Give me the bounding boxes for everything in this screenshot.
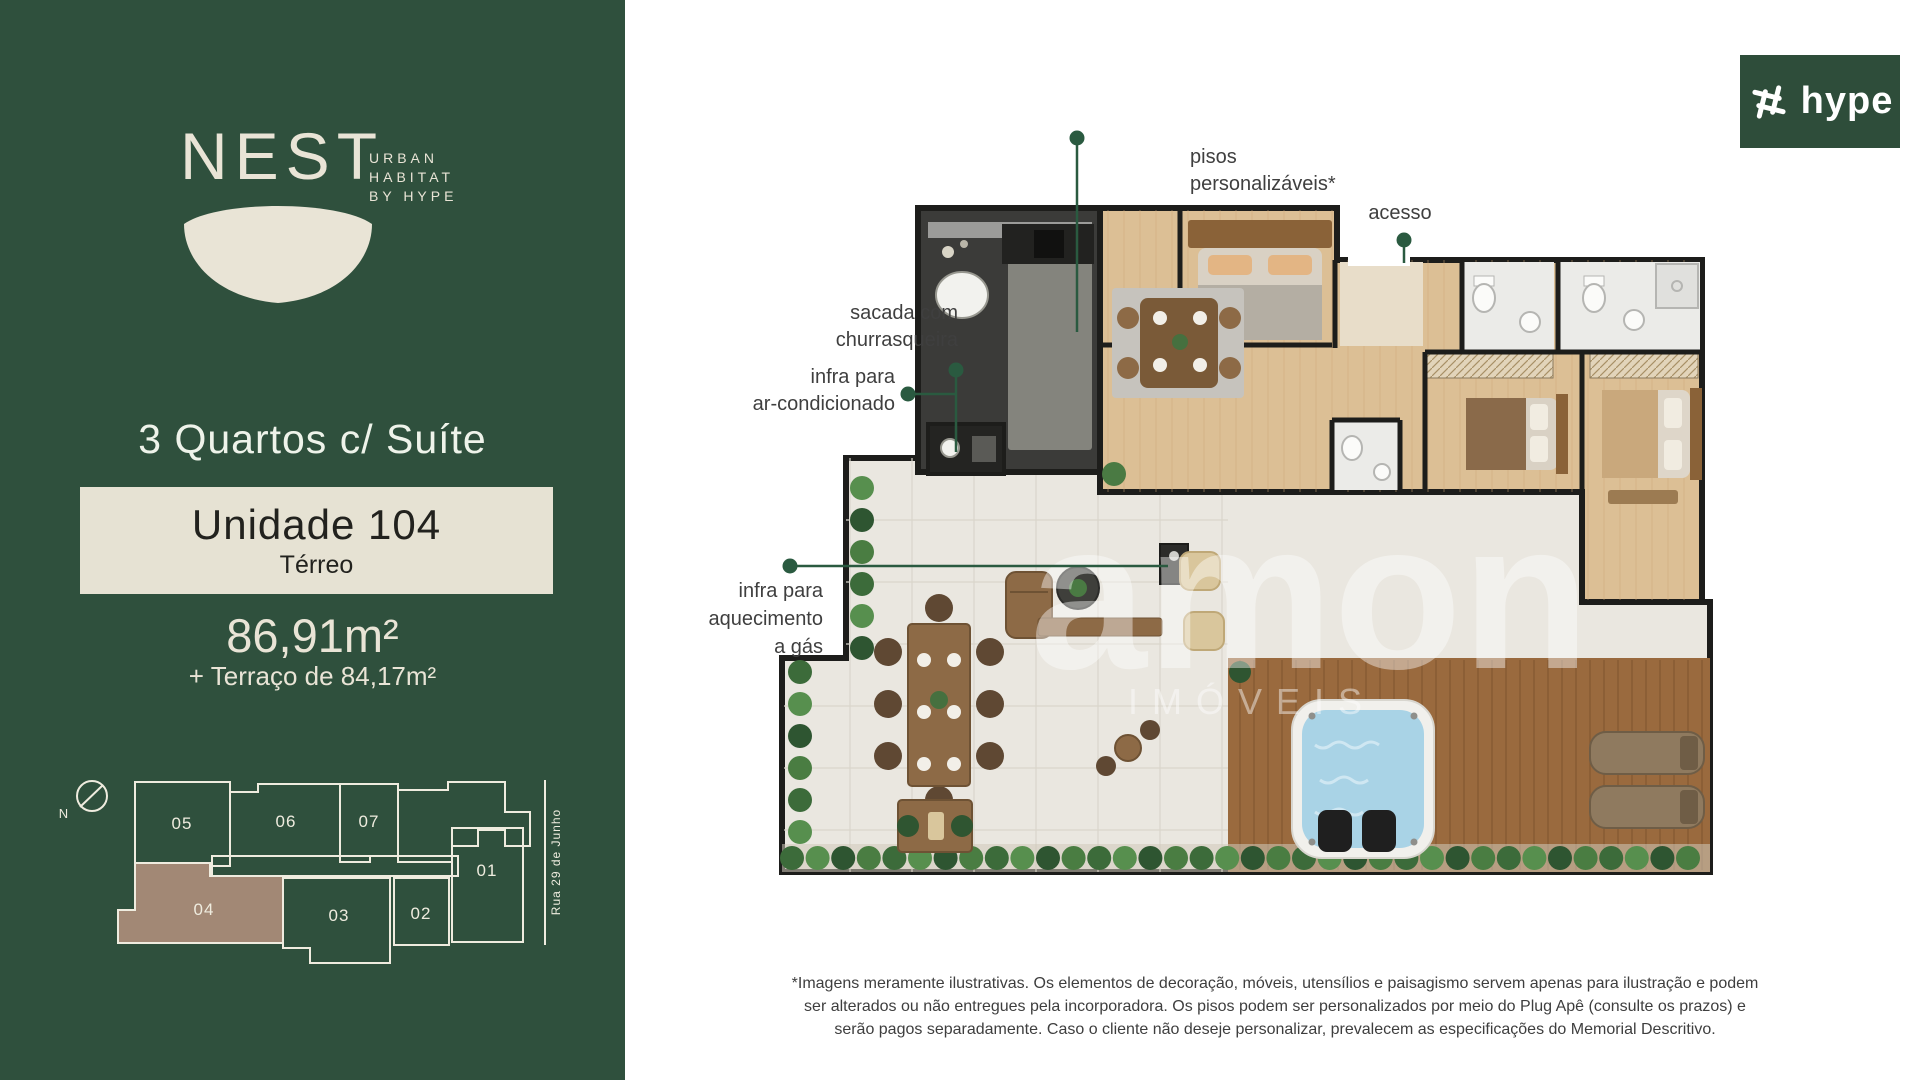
platform-plant-2: [951, 815, 973, 837]
tchair-4: [976, 638, 1004, 666]
tchair-2: [874, 690, 902, 718]
callout-sacada-line1: sacada com: [768, 300, 958, 327]
suite-blanket: [1602, 390, 1658, 478]
toilet-1: [1473, 284, 1495, 312]
grill-top: [1034, 230, 1064, 258]
area-terrace: + Terraço de 84,17m²: [0, 661, 625, 692]
typology-title: 3 Quartos c/ Suíte: [0, 416, 625, 463]
dining-chair-1: [1117, 307, 1139, 329]
unit-label-01: 01: [477, 861, 498, 880]
wardrobe-1: [1427, 354, 1553, 378]
tchair-3: [874, 742, 902, 770]
sitemap-core: [398, 782, 530, 862]
acesso-dot: [1397, 233, 1412, 248]
unit-label-03: 03: [329, 906, 350, 925]
bistro-chair-1: [1096, 756, 1116, 776]
infra-gas-dot: [783, 559, 798, 574]
hype-logo-text: hype: [1801, 80, 1894, 123]
callout-infra-ar-line1: infra para: [705, 364, 895, 391]
callout-infra-gas-line1: infra para: [633, 577, 823, 605]
table-plant: [930, 691, 948, 709]
shower-box: [1656, 264, 1698, 308]
compass-chord: [80, 785, 103, 807]
plate-1: [1153, 311, 1167, 325]
sacada-rug: [1008, 258, 1092, 450]
unit-title: Unidade 104: [80, 501, 553, 549]
dining-chair-3: [1219, 307, 1241, 329]
mini-sitemap: [77, 780, 545, 963]
unit-label-02: 02: [411, 904, 432, 923]
unit-box: Unidade 104 Térreo: [80, 487, 553, 594]
disclaimer: *Imagens meramente ilustrativas. Os elem…: [660, 972, 1890, 1041]
brand-wordmark: NEST: [180, 118, 384, 194]
nest-bowl-logo-shape: [184, 206, 372, 303]
brand-tagline-line2: HABITAT: [369, 168, 457, 187]
bistro-chair-2: [1140, 720, 1160, 740]
sacada-dot: [949, 363, 964, 378]
brand-tagline-line3: BY HYPE: [369, 187, 457, 206]
centerpiece-plant: [1172, 334, 1188, 350]
platform-cushion: [928, 812, 944, 840]
pool-jet-3: [1309, 839, 1316, 846]
tplate-6: [947, 757, 961, 771]
brand-tagline-line1: URBAN: [369, 149, 457, 168]
disclaimer-line3: serão pagos separadamente. Caso o client…: [660, 1018, 1890, 1041]
disclaimer-line2: ser alterados ou não entregues pela inco…: [660, 995, 1890, 1018]
unit-floor: Térreo: [80, 551, 553, 580]
dining-chair-4: [1219, 357, 1241, 379]
bed2-pillow-1: [1208, 255, 1252, 275]
watermark-name: amon: [1030, 478, 1590, 713]
tplate-3: [917, 705, 931, 719]
sacada-faucet: [942, 246, 954, 258]
unit-label-07: 07: [359, 812, 380, 831]
tchair-6: [976, 742, 1004, 770]
pool-lounger-2: [1362, 810, 1396, 852]
entry-tile: [1340, 262, 1423, 346]
callout-infra-gas-line3: a gás: [633, 633, 823, 661]
bed3-blanket: [1466, 398, 1526, 470]
pool-jet-2: [1411, 713, 1418, 720]
unit-label-04: 04: [194, 900, 215, 919]
plate-4: [1193, 358, 1207, 372]
bed3-pillow-1: [1530, 404, 1548, 430]
callout-acesso: acesso: [1340, 200, 1460, 227]
acesso-door-gap: [1348, 252, 1410, 266]
pisos-dot: [1070, 131, 1085, 146]
watermark-sub: IMÓVEIS: [1128, 681, 1376, 722]
street-name: Rua 29 de Junho: [549, 809, 563, 915]
tplate-1: [917, 653, 931, 667]
suite-bench: [1608, 490, 1678, 504]
bed3-pillow-2: [1530, 436, 1548, 462]
callout-pisos-line2: personalizáveis*: [1190, 171, 1336, 198]
callout-infra-gas: infra para aquecimento a gás: [633, 577, 823, 661]
sink-1: [1520, 312, 1540, 332]
sacada-faucet2: [960, 240, 968, 248]
pool-jet-4: [1411, 839, 1418, 846]
bed2-headboard: [1188, 220, 1332, 248]
callout-sacada: sacada com churrasqueira: [768, 300, 958, 354]
hype-logo: hype: [1740, 55, 1900, 148]
infra-ar-dot: [901, 387, 916, 402]
sink-2: [1624, 310, 1644, 330]
tplate-2: [947, 653, 961, 667]
callout-pisos: pisos personalizáveis*: [1190, 144, 1336, 198]
terrace-kitchen-grill: [972, 436, 996, 462]
callout-infra-ar: infra para ar-condicionado: [705, 364, 895, 418]
bed3-headboard: [1556, 394, 1568, 474]
suite-headboard: [1690, 388, 1702, 480]
platform-plant-1: [897, 815, 919, 837]
area-main: 86,91m²: [0, 608, 625, 663]
sitemap-corridor: [212, 856, 458, 876]
disclaimer-line1: *Imagens meramente ilustrativas. Os elem…: [660, 972, 1890, 995]
brochure-page: N 05 06 07 01 04 03 02 Rua 29 de Junho: [0, 0, 1920, 1080]
callout-infra-gas-line2: aquecimento: [633, 605, 823, 633]
sun-lounger-2-pillow: [1680, 790, 1698, 824]
wardrobe-2: [1590, 354, 1698, 378]
pool-lounger-1: [1318, 810, 1352, 852]
plate-2: [1193, 311, 1207, 325]
watermark: amon IMÓVEIS: [1030, 478, 1590, 722]
brand-tagline: URBAN HABITAT BY HYPE: [369, 149, 457, 206]
unit-label-05: 05: [172, 814, 193, 833]
callout-infra-ar-line2: ar-condicionado: [705, 391, 895, 418]
plate-3: [1153, 358, 1167, 372]
tplate-4: [947, 705, 961, 719]
dining-chair-2: [1117, 357, 1139, 379]
suite-pillow-1: [1664, 398, 1682, 428]
unit-label-06: 06: [276, 812, 297, 831]
tplate-5: [917, 757, 931, 771]
suite-pillow-2: [1664, 440, 1682, 470]
sun-lounger-1-pillow: [1680, 736, 1698, 770]
wc-toilet: [1342, 436, 1362, 460]
compass-n: N: [59, 806, 69, 821]
callout-sacada-line2: churrasqueira: [768, 327, 958, 354]
tchair-1: [874, 638, 902, 666]
hype-pinwheel-icon: [1747, 80, 1791, 124]
bed2-pillow-2: [1268, 255, 1312, 275]
bistro-table: [1115, 735, 1141, 761]
callout-pisos-line1: pisos: [1190, 144, 1336, 171]
tchair-5: [976, 690, 1004, 718]
tchair-7: [925, 594, 953, 622]
toilet-2: [1583, 284, 1605, 312]
